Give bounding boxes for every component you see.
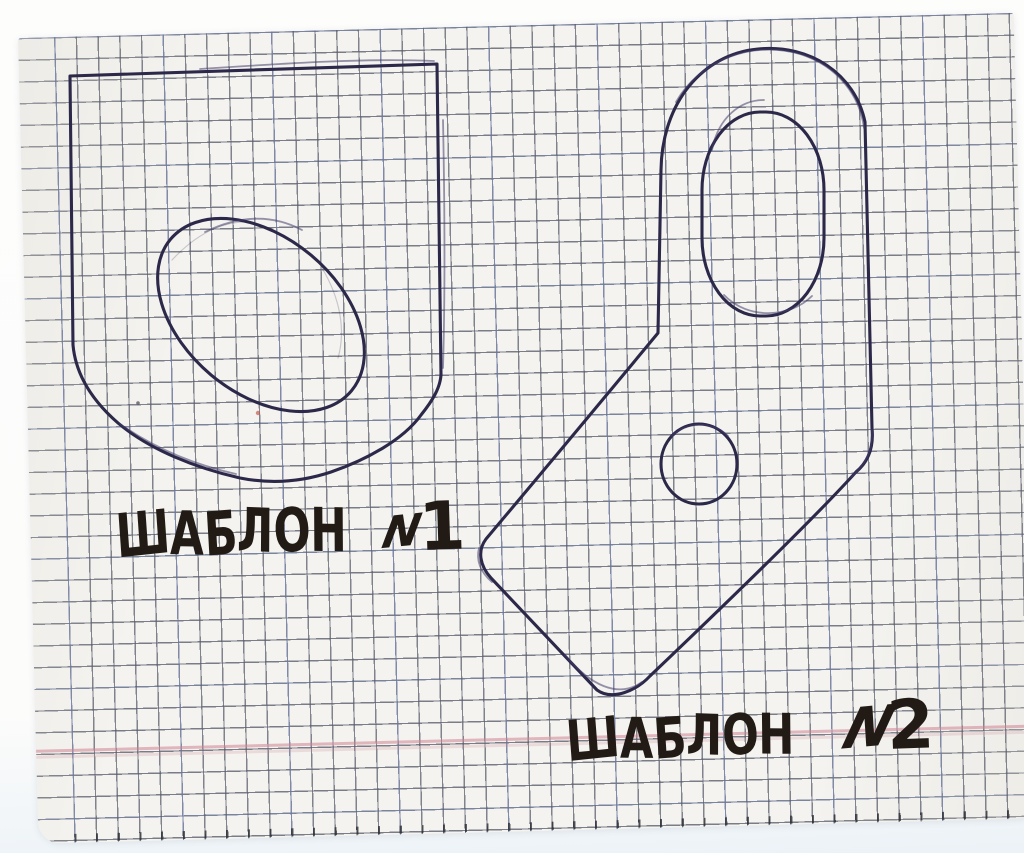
template2-label-word: ШАБЛОН	[565, 706, 767, 769]
template1-label-numero-sign: N	[379, 508, 425, 556]
paper-bottom-edge-ink-ticks	[74, 810, 1024, 842]
scanner-background: ШАБЛОН N 1 ШАБЛОН N 2	[0, 0, 1024, 853]
scanned-graph-paper-page: { "labels": { "template1": { "word": "ША…	[0, 0, 1024, 853]
template1-label: ШАБЛОН N 1	[115, 493, 466, 568]
template2-label: ШАБЛОН N 2	[565, 691, 935, 769]
template1-label-word: ШАБЛОН	[115, 501, 310, 568]
template1-label-number: 1	[418, 493, 467, 561]
